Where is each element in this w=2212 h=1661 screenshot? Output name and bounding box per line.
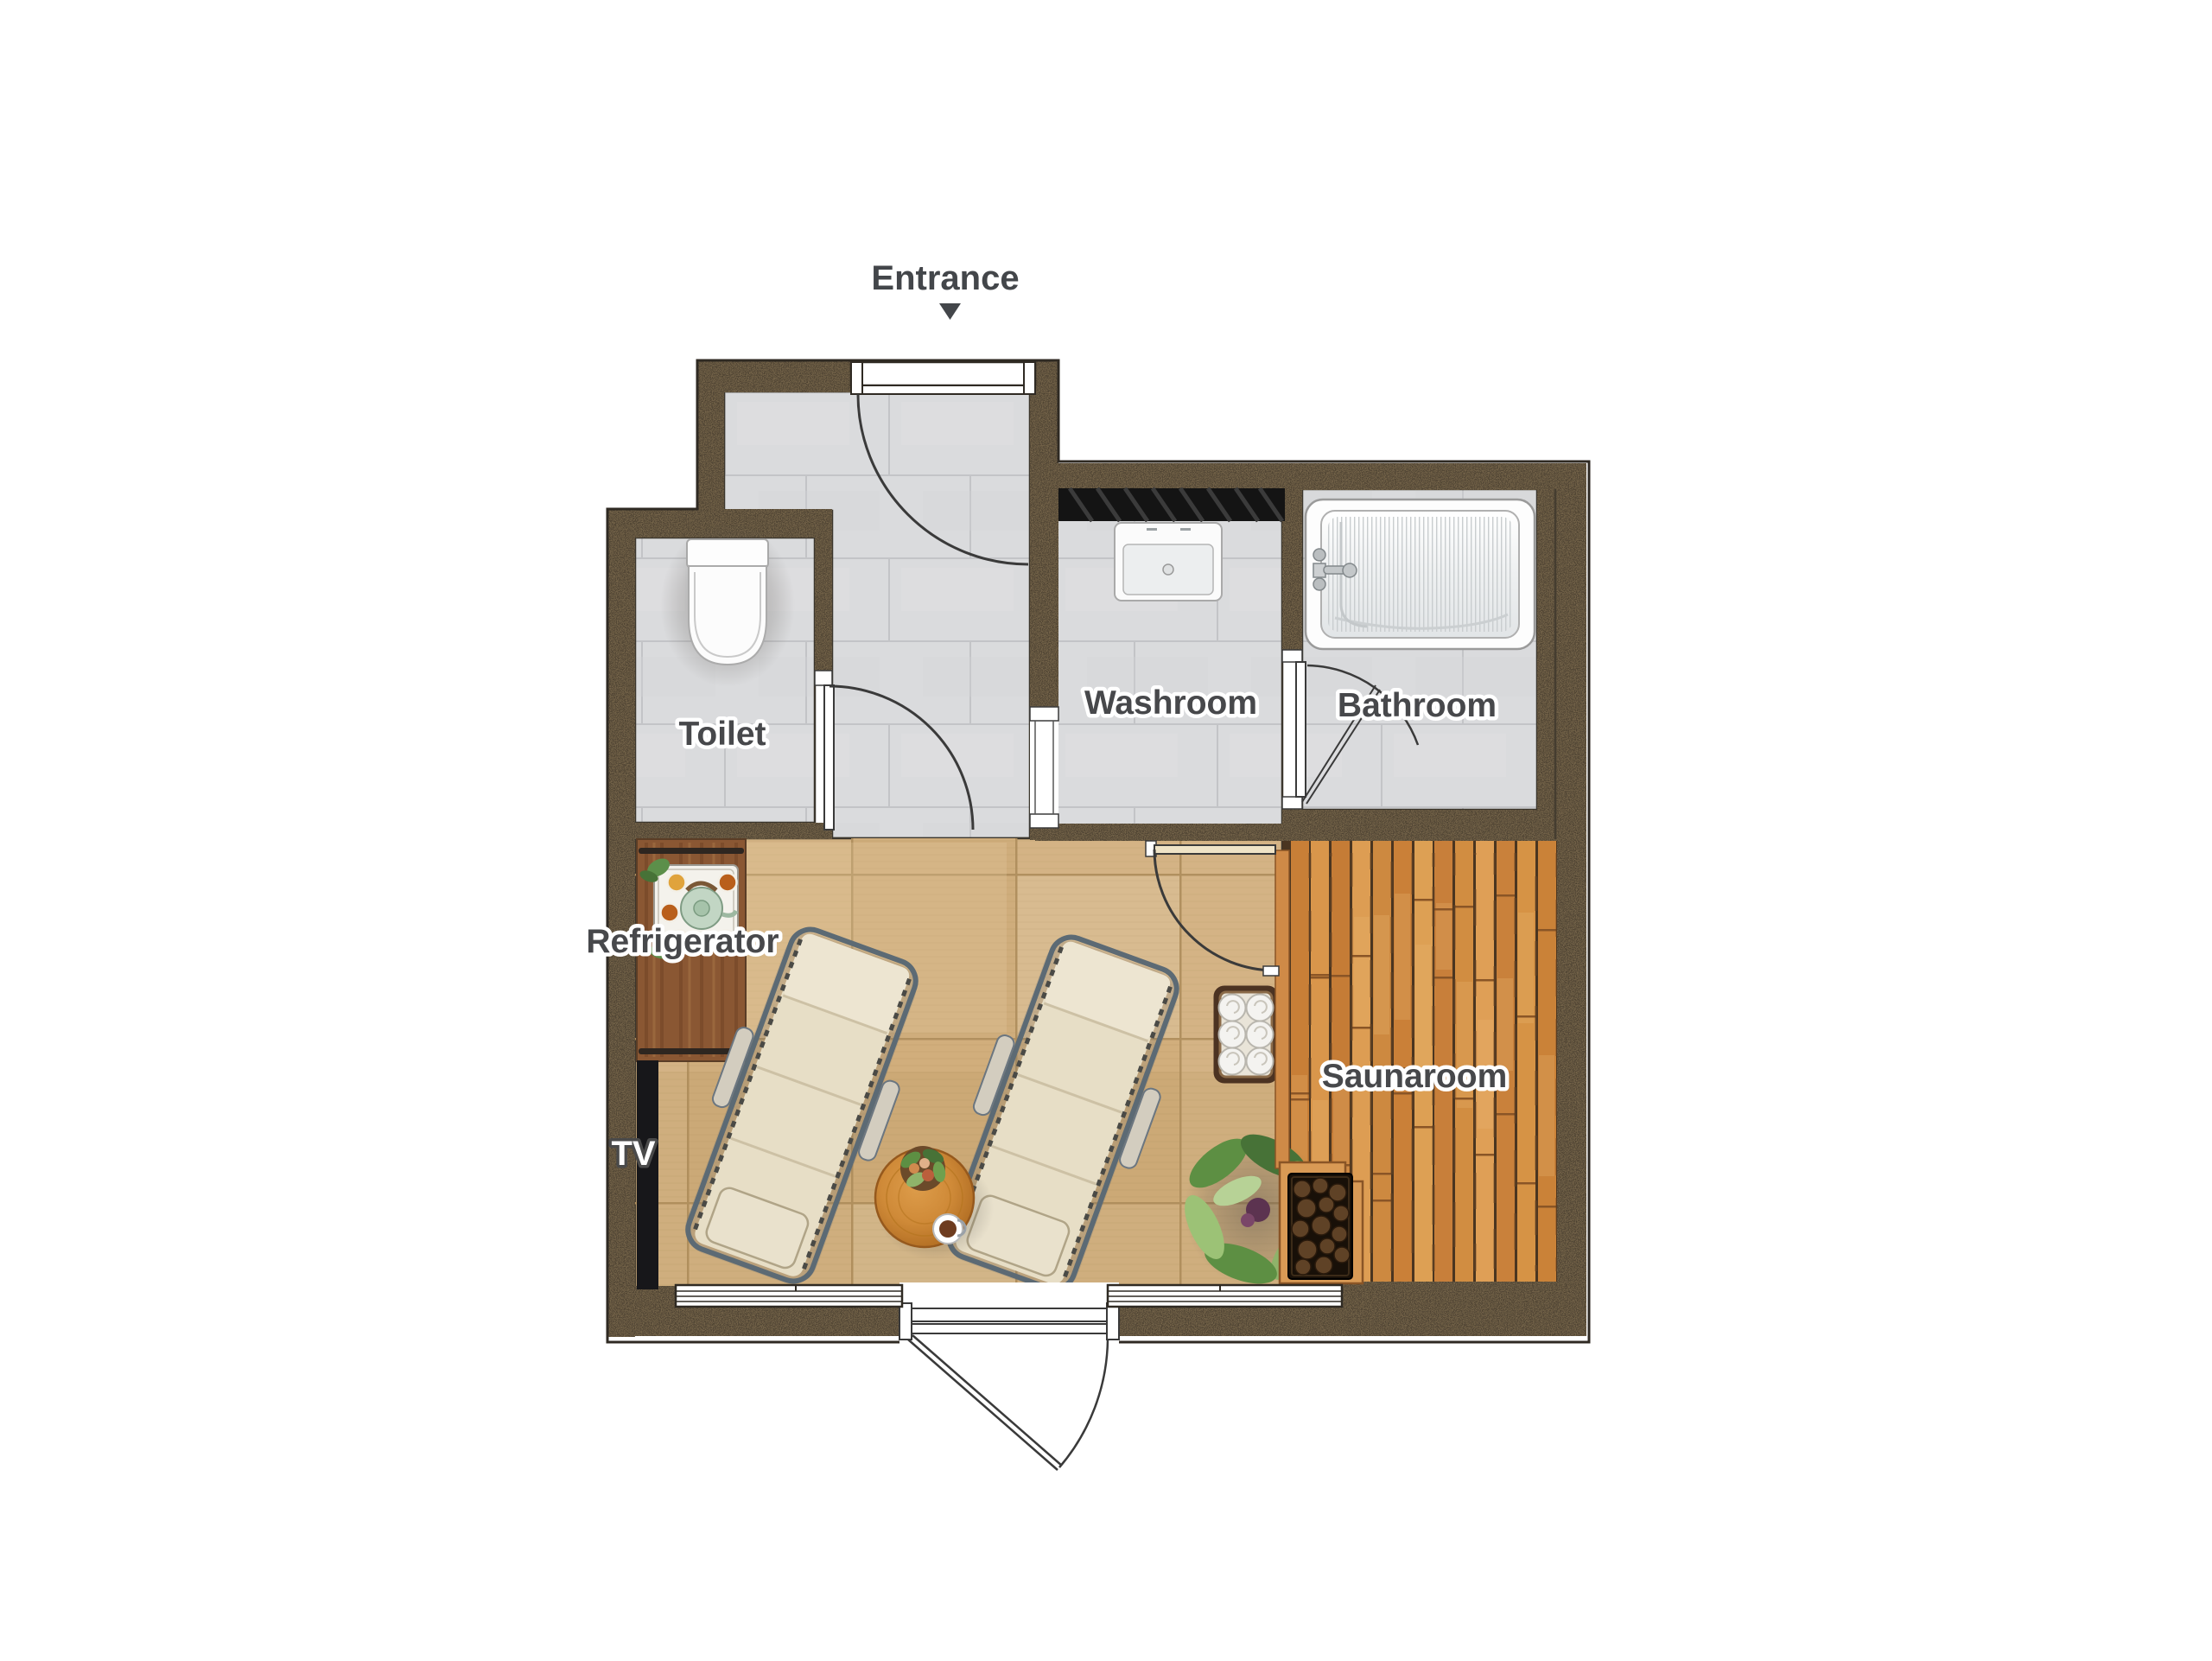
svg-text:Saunaroom: Saunaroom (1322, 1058, 1508, 1095)
svg-text:Entrance: Entrance (871, 259, 1019, 297)
svg-text:TV: TV (611, 1135, 655, 1173)
svg-text:Refrigerator: Refrigerator (586, 923, 779, 960)
svg-text:Toilet: Toilet (678, 716, 766, 753)
svg-text:Bathroom: Bathroom (1338, 687, 1497, 724)
svg-text:Washroom: Washroom (1084, 684, 1257, 722)
